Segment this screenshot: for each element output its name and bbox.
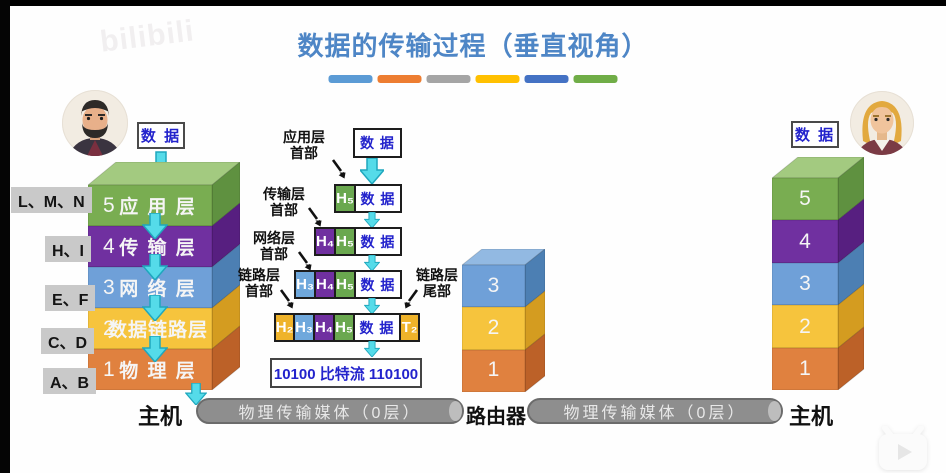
tv-play-icon <box>874 426 932 472</box>
layer-number: 1 <box>103 358 115 382</box>
title-underline-bars <box>329 75 618 83</box>
app-header-label: 应用层 首部 <box>276 130 332 161</box>
page-title: 数据的传输过程（垂直视角） <box>0 26 946 63</box>
layer-number: 4 <box>103 235 115 259</box>
encap-row-4: H₃ H₄ H₅ 数 据 <box>294 270 402 299</box>
h5-cell: H₅ <box>334 184 356 213</box>
pointer-arrow-icon <box>306 206 326 230</box>
router-layer-2: 2 <box>462 307 525 349</box>
sdu-tag: H、I <box>45 236 91 262</box>
left-host-caption: 主机 <box>138 399 182 431</box>
pointer-arrow-icon <box>296 250 316 274</box>
accent-bar <box>378 75 422 83</box>
right-layer-3: 3 <box>772 263 838 305</box>
router-layer-1: 1 <box>462 349 525 391</box>
layer-number: 2 <box>103 317 115 341</box>
pointer-arrow-icon <box>278 288 298 312</box>
pointer-arrow-icon <box>330 158 350 182</box>
t2-cell: T₂ <box>399 313 420 342</box>
data-box-right: 数 据 <box>791 121 839 148</box>
letterbox-top <box>0 0 946 6</box>
sdu-tag: E、F <box>45 285 95 311</box>
data-box-left: 数 据 <box>137 122 185 149</box>
physical-media-left: 物理传输媒体（0层） <box>196 398 464 424</box>
h2-cell: H₂ <box>274 313 295 342</box>
accent-bar <box>574 75 618 83</box>
woman-face-icon <box>850 91 914 155</box>
h5-cell: H₅ <box>334 270 356 299</box>
data-cell: 数 据 <box>353 128 402 158</box>
h5-cell: H₅ <box>333 313 355 342</box>
bilibili-play-button[interactable] <box>874 426 932 473</box>
data-cell: 数 据 <box>354 227 402 256</box>
down-arrow-icon <box>364 255 380 271</box>
letterbox-left <box>0 0 10 473</box>
sdu-tag: C、D <box>41 328 94 354</box>
encap-row-3: H₄ H₅ 数 据 <box>314 227 402 256</box>
right-layer-5: 5 <box>772 178 838 220</box>
right-host-caption: 主机 <box>789 399 833 431</box>
accent-bar <box>476 75 520 83</box>
transport-header-label: 传输层 首部 <box>258 187 310 218</box>
data-cell: 数 据 <box>354 270 402 299</box>
h4-cell: H₄ <box>314 227 336 256</box>
link-header-label: 链路层 首部 <box>234 268 284 299</box>
layer-number: 5 <box>103 194 115 218</box>
man-face-icon <box>62 90 128 156</box>
h4-cell: H₄ <box>314 270 336 299</box>
down-arrow-icon <box>364 341 380 357</box>
encap-row-2: H₅ 数 据 <box>334 184 402 213</box>
down-arrow-icon <box>142 213 168 239</box>
sender-avatar <box>62 90 128 156</box>
encap-row-1: 数 据 <box>353 128 402 158</box>
receiver-avatar <box>850 91 914 155</box>
down-arrow-icon <box>360 158 384 184</box>
down-arrow-icon <box>142 336 168 362</box>
down-arrow-icon <box>364 298 380 314</box>
right-layer-4: 4 <box>772 220 838 263</box>
accent-bar <box>427 75 471 83</box>
bitstream-box: 10100 比特流 110100 <box>270 358 422 388</box>
h3-cell: H₃ <box>293 313 315 342</box>
data-cell: 数 据 <box>353 313 401 342</box>
data-cell: 数 据 <box>354 184 402 213</box>
down-arrow-icon <box>142 254 168 280</box>
right-layer-2: 2 <box>772 305 838 348</box>
down-arrow-icon <box>142 295 168 321</box>
network-header-label: 网络层 首部 <box>248 231 300 262</box>
router-caption: 路由器 <box>466 400 526 429</box>
accent-bar <box>329 75 373 83</box>
encap-row-5: H₂ H₃ H₄ H₅ 数 据 T₂ <box>274 313 420 342</box>
down-arrow-icon <box>364 212 380 228</box>
accent-bar <box>525 75 569 83</box>
h4-cell: H₄ <box>313 313 335 342</box>
layer-number: 3 <box>103 276 115 300</box>
sdu-tag: L、M、N <box>11 187 92 213</box>
right-layer-1: 1 <box>772 348 838 390</box>
router-layer-3: 3 <box>462 265 525 307</box>
h5-cell: H₅ <box>334 227 356 256</box>
sdu-tag: A、B <box>43 368 96 394</box>
video-frame: bilibili 数据的传输过程（垂直视角） 数 据 <box>0 0 946 473</box>
physical-media-right: 物理传输媒体（0层） <box>527 398 783 424</box>
pointer-arrow-icon <box>400 288 420 312</box>
